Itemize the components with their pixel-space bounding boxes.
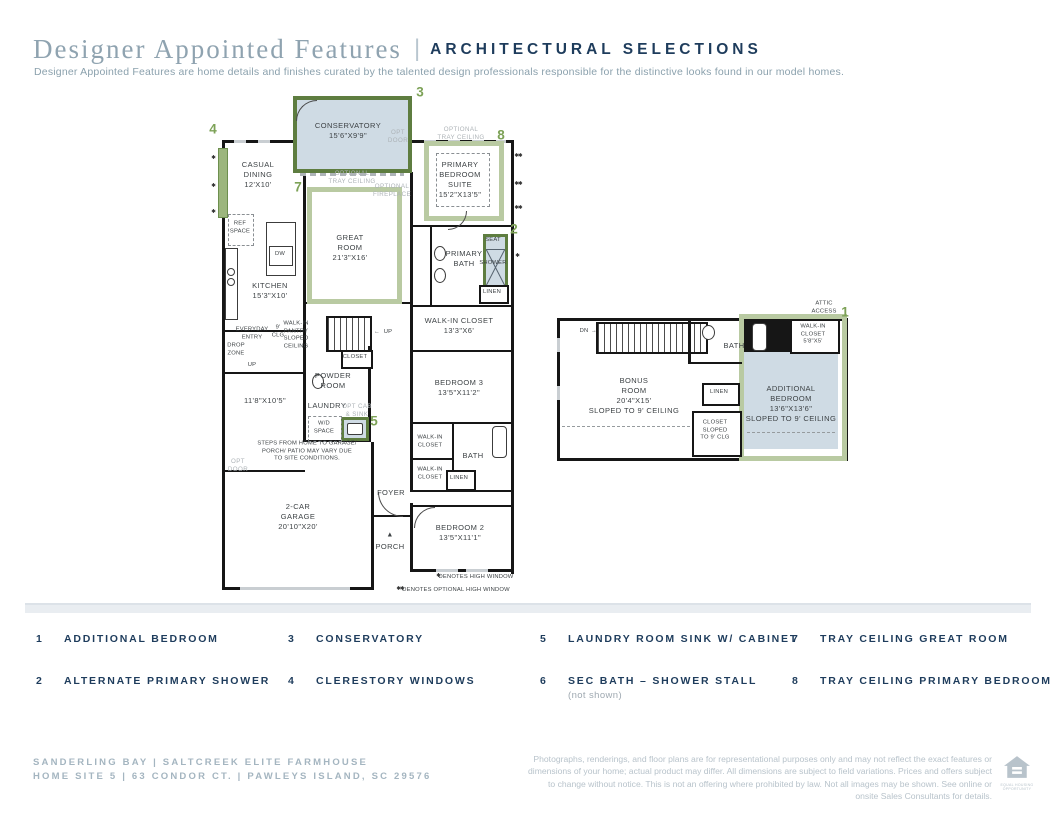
legend-item-7: 7TRAY CEILING GREAT ROOM bbox=[792, 633, 1009, 645]
wall bbox=[410, 172, 413, 492]
label-linen: LINEN bbox=[483, 289, 501, 297]
callout-8: 8 bbox=[497, 128, 505, 143]
wall bbox=[303, 172, 306, 304]
callout-4: 4 bbox=[209, 122, 217, 137]
sloped-ceiling-line bbox=[747, 432, 835, 433]
legend-item-3: 3CONSERVATORY bbox=[288, 633, 424, 645]
door-arc bbox=[414, 507, 435, 528]
opt-high-window-marker: ✱✱ bbox=[514, 153, 521, 159]
legend-num: 5 bbox=[540, 633, 568, 645]
room-label-bath: BATH bbox=[462, 451, 483, 461]
room-label-bedroom3: BEDROOM 3 13'5"X11'2" bbox=[435, 378, 484, 398]
wall bbox=[744, 319, 790, 352]
legend-label: TRAY CEILING GREAT ROOM bbox=[820, 633, 1009, 645]
label-opt-cab-sink: OPT CAB & SINK bbox=[342, 403, 372, 419]
high-window-marker: ✱ bbox=[211, 209, 215, 215]
wall bbox=[222, 372, 305, 374]
title-serif: Designer Appointed Features bbox=[33, 34, 402, 64]
window-marker bbox=[240, 587, 350, 590]
wall bbox=[410, 569, 514, 572]
sloped-ceiling-line bbox=[562, 426, 690, 427]
note-high-window: DENOTES HIGH WINDOW bbox=[439, 574, 514, 582]
label-wic-b: WALK-IN CLOSET bbox=[417, 466, 442, 481]
stairs-up bbox=[326, 316, 372, 352]
legend-num: 4 bbox=[288, 675, 316, 687]
legend-item-6: 6SEC BATH – SHOWER STALL(not shown) bbox=[540, 675, 757, 701]
room-label-primary-bath: PRIMARY BATH bbox=[446, 249, 483, 269]
legend-num: 2 bbox=[36, 675, 64, 687]
window-marker bbox=[258, 140, 270, 143]
cooktop-burner bbox=[227, 278, 235, 286]
toilet-fixture bbox=[702, 325, 715, 340]
opt-high-window-marker: ✱✱ bbox=[514, 181, 521, 187]
legend-num: 1 bbox=[36, 633, 64, 645]
label-optional-tray-great: OPTIONAL TRAY CEILING bbox=[328, 170, 375, 186]
legend-item-1: 1ADDITIONAL BEDROOM bbox=[36, 633, 219, 645]
legend-num: 8 bbox=[792, 675, 820, 687]
room-label-primary-suite: PRIMARY BEDROOM SUITE 15'2"X13'5" bbox=[439, 160, 482, 200]
sink-fixture bbox=[347, 423, 363, 435]
legend-label: SEC BATH – SHOWER STALL bbox=[568, 675, 757, 687]
section-divider bbox=[25, 603, 1031, 613]
label-pantry: WALK-IN PANTRY SLOPED CEILING bbox=[283, 321, 308, 352]
equal-housing-text: EQUAL HOUSING OPPORTUNITY bbox=[1000, 783, 1034, 791]
wall bbox=[412, 505, 512, 507]
room-label-casual-dining: CASUAL DINING 12'X10' bbox=[242, 160, 274, 190]
wall bbox=[688, 362, 742, 364]
label-up-left: UP bbox=[248, 362, 256, 370]
title-sans: ARCHITECTURAL SELECTIONS bbox=[430, 41, 762, 58]
equal-housing-logo: EQUAL HOUSING OPPORTUNITY bbox=[1000, 756, 1034, 791]
window-marker bbox=[234, 140, 246, 143]
legend-note: (not shown) bbox=[568, 690, 757, 701]
label-steps-note: STEPS FROM HOME TO GARAGE/ PORCH/ PATIO … bbox=[257, 441, 356, 464]
window-marker bbox=[436, 569, 458, 572]
legend-label: LAUNDRY ROOM SINK W/ CABINET bbox=[568, 633, 798, 645]
tub-fixture bbox=[752, 323, 767, 351]
toilet-fixture bbox=[434, 246, 446, 261]
footer-address: HOME SITE 5 | 63 CONDOR CT. | PAWLEYS IS… bbox=[33, 771, 431, 782]
legend-label: ADDITIONAL BEDROOM bbox=[64, 633, 219, 645]
label-optional-tray-primary: OPTIONAL TRAY CEILING bbox=[437, 126, 484, 142]
label-everyday-entry: EVERYDAY ENTRY bbox=[236, 326, 269, 341]
callout-7: 7 bbox=[294, 180, 302, 195]
label-dw: DW bbox=[275, 251, 285, 259]
label-ref-space: REF SPACE bbox=[230, 220, 250, 235]
legend-label: CONSERVATORY bbox=[316, 633, 424, 645]
high-window-marker: ✱ bbox=[515, 253, 519, 259]
label-linen-hall: LINEN bbox=[450, 475, 468, 483]
label-dn: DN bbox=[580, 328, 589, 336]
flyer-page: Designer Appointed Features|ARCHITECTURA… bbox=[0, 0, 1055, 815]
equal-housing-house-icon bbox=[1004, 756, 1030, 778]
wall bbox=[413, 458, 453, 460]
cooktop-burner bbox=[227, 268, 235, 276]
label-shower: SHOWER bbox=[479, 260, 506, 268]
label-linen2f: LINEN bbox=[710, 389, 728, 397]
wall bbox=[373, 515, 410, 517]
arrow-left-icon: ← bbox=[374, 329, 380, 337]
tub-fixture bbox=[492, 426, 507, 458]
room-label-additional-bedroom: ADDITIONAL BEDROOM 13'6"X13'6" SLOPED TO… bbox=[746, 384, 836, 424]
sink-fixture bbox=[434, 268, 446, 283]
label-attic-access: ATTIC ACCESS bbox=[811, 300, 836, 315]
room-label-bonus: BONUS ROOM 20'4"X15' SLOPED TO 9' CEILIN… bbox=[589, 376, 679, 416]
legend-label: TRAY CEILING PRIMARY BEDROOM bbox=[820, 675, 1052, 687]
room-label-bath2f: BATH bbox=[723, 341, 744, 351]
label-wd-space: W/D SPACE bbox=[314, 420, 334, 435]
wall bbox=[410, 503, 413, 572]
high-window-marker: ✱ bbox=[211, 183, 215, 189]
room-label-powder: POWDER ROOM bbox=[315, 371, 351, 391]
label-seat: SEAT bbox=[485, 237, 501, 245]
callout-2: 2 bbox=[510, 222, 518, 237]
door-arc bbox=[448, 211, 467, 230]
callout-1: 1 bbox=[841, 305, 849, 320]
wall bbox=[413, 305, 511, 307]
label-wic-a: WALK-IN CLOSET bbox=[417, 434, 442, 449]
legend-num: 3 bbox=[288, 633, 316, 645]
page-title: Designer Appointed Features|ARCHITECTURA… bbox=[33, 34, 762, 65]
clerestory-strip bbox=[218, 148, 228, 218]
label-flex-dims: 11'8"X10'5" bbox=[244, 396, 286, 406]
room-label-bedroom2: BEDROOM 2 13'5"X11'1" bbox=[436, 523, 485, 543]
wall bbox=[413, 422, 511, 424]
window-marker bbox=[557, 338, 560, 352]
wall bbox=[413, 225, 511, 227]
label-wic2f: WALK-IN CLOSET 5'8"X5' bbox=[800, 324, 825, 347]
room-label-garage: 2-CAR GARAGE 20'10"X20' bbox=[278, 502, 318, 532]
room-label-laundry: LAUNDRY bbox=[308, 401, 347, 411]
room-label-conservatory: CONSERVATORY 15'6"X9'9" bbox=[315, 121, 381, 141]
callout-5: 5 bbox=[370, 414, 378, 429]
legend-item-8: 8TRAY CEILING PRIMARY BEDROOM bbox=[792, 675, 1052, 687]
label-up-stairs: UP bbox=[384, 329, 392, 337]
legend-label: CLERESTORY WINDOWS bbox=[316, 675, 475, 687]
stairs-down bbox=[596, 322, 708, 354]
legend-item-5: 5LAUNDRY ROOM SINK W/ CABINET bbox=[540, 633, 798, 645]
label-drop-zone: DROP ZONE bbox=[227, 342, 245, 357]
label-opt-door: OPT DOOR bbox=[388, 129, 408, 145]
room-label-kitchen: KITCHEN 15'3"X10' bbox=[252, 281, 288, 301]
window-marker bbox=[466, 569, 488, 572]
title-divider: | bbox=[402, 35, 430, 62]
subtitle: Designer Appointed Features are home det… bbox=[34, 66, 844, 78]
wall bbox=[688, 320, 691, 364]
legend-num: 7 bbox=[792, 633, 820, 645]
callout-3: 3 bbox=[416, 85, 424, 100]
room-label-walk-in-primary: WALK-IN CLOSET 13'3"X6' bbox=[425, 316, 494, 336]
legend-item-2: 2ALTERNATE PRIMARY SHOWER bbox=[36, 675, 270, 687]
high-window-marker: ✱ bbox=[211, 155, 215, 161]
legend-label: ALTERNATE PRIMARY SHOWER bbox=[64, 675, 270, 687]
arrow-right-icon: → bbox=[591, 328, 597, 336]
wall bbox=[430, 227, 432, 305]
window-marker bbox=[557, 386, 560, 400]
room-label-foyer: FOYER bbox=[377, 488, 405, 498]
note-opt-high-window: DENOTES OPTIONAL HIGH WINDOW bbox=[402, 587, 509, 595]
opt-cab-sink bbox=[341, 417, 369, 441]
footer-disclaimer: Photographs, renderings, and floor plans… bbox=[525, 753, 992, 803]
label-optional-fireplace: OPTIONAL FIREPLACE bbox=[373, 183, 411, 199]
room-label-great-room: GREAT ROOM 21'3"X16' bbox=[333, 233, 368, 263]
footer-community: SANDERLING BAY | SALTCREEK ELITE FARMHOU… bbox=[33, 757, 368, 768]
label-closet-sloped: CLOSET SLOPED TO 9' CLG bbox=[700, 420, 729, 443]
label-closet-hall: CLOSET bbox=[343, 354, 367, 362]
legend-item-4: 4CLERESTORY WINDOWS bbox=[288, 675, 475, 687]
room-label-porch: PORCH bbox=[375, 542, 404, 552]
opt-high-window-marker: ✱✱ bbox=[514, 205, 521, 211]
porch-triangle-icon: ▲ bbox=[386, 530, 393, 539]
wall bbox=[413, 350, 511, 352]
legend-num: 6 bbox=[540, 675, 568, 687]
label-opt-door-left: OPT DOOR bbox=[228, 458, 248, 474]
